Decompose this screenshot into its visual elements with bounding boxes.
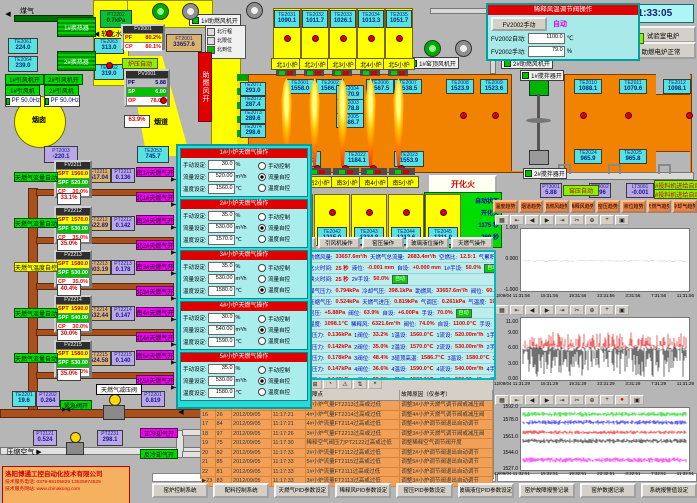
instrument-FT2001: FT200133657.6	[166, 34, 202, 52]
radio-label: 温度自控	[268, 388, 290, 396]
instrument-TE2064: TE2064239.0	[8, 56, 38, 72]
chart-series-2#小炉温度	[523, 420, 686, 425]
burner-indicator-strip	[333, 168, 359, 175]
controller-row-key: SP	[128, 89, 135, 95]
burner-field-input[interactable]: 35.0	[208, 364, 235, 374]
burner-field-input[interactable]: 30.0	[208, 160, 235, 170]
instrument-value: 298.1	[102, 437, 117, 443]
cut-icon[interactable]: ✂	[570, 305, 584, 315]
burner-field-input[interactable]: 35.0	[208, 211, 235, 221]
burner-field-unit: ℃	[236, 339, 242, 345]
param-row: 4压力:0.147kPa4阀位:36.6%4温设:1590.0℃4流设:540.…	[307, 364, 494, 375]
alarm-cell: 调整3#小炉天燃气调节阀或减压阀	[400, 401, 493, 410]
company-site: 技术服务网站: www.chinakong.com	[5, 485, 127, 492]
radio-icon	[258, 235, 266, 243]
regen-cell-north: TE20321011.7	[301, 8, 329, 60]
last-icon[interactable]: ⇥	[555, 305, 569, 315]
burner-field-input[interactable]: 520.00	[208, 172, 235, 182]
chart-xticks: 12/09/04 11:32:5115:32:5119:32:5123:32:5…	[494, 471, 694, 479]
burner-mode-radio[interactable]: 手动控制	[258, 262, 306, 273]
alarm-cell: 调整3#小炉天燃气调节阀或减压阀	[400, 430, 493, 439]
param-label: 液位:	[352, 264, 365, 272]
plant-label: 1#引风机开	[5, 74, 44, 85]
regen-cell-north: TE20311090.1	[273, 8, 301, 60]
cut-icon[interactable]: ✂	[570, 215, 584, 225]
next-icon[interactable]: ▶	[540, 305, 554, 315]
instrument-TE2035: TE20351051.7	[386, 10, 412, 28]
chart-ytick: 1578.0	[492, 417, 518, 424]
param-label: 5温设:	[391, 376, 407, 380]
param-label: 天燃气总流量:	[370, 253, 405, 261]
dilution-auto-input[interactable]: 1100.0	[528, 33, 565, 44]
burner-indicator-strip	[361, 168, 387, 175]
param-badge: 自动	[392, 275, 408, 284]
plant-label-text: 正冷却气开	[144, 429, 174, 438]
ops-button[interactable]: 窑压操作	[362, 237, 404, 249]
close-icon[interactable]: ×	[368, 379, 382, 389]
radio-label: 手动控制	[268, 315, 290, 323]
instrument-value: 319.0	[101, 71, 116, 77]
param-label: 1手设:	[486, 331, 494, 339]
chart-ytick: 1.000	[492, 225, 518, 232]
company-info: 洛阳博通工控自动化技术有限公司 技术服务电话: 0379-65105829 13…	[2, 466, 130, 503]
reducer-valve-body	[103, 405, 125, 420]
controller-row-key: SPT	[58, 217, 69, 223]
param-value: +0.000 mm	[413, 265, 441, 271]
alarm-row[interactable]: 21852012/09/0511:17:335#小炉流量FT2115过高或过低调…	[201, 458, 493, 468]
param-value: 1586.7℃	[421, 355, 444, 361]
zoom-icon[interactable]: ⊕	[585, 215, 599, 225]
nav-button[interactable]: 天燃气PID参数设定	[274, 483, 330, 498]
zoom-icon[interactable]: ⊕	[585, 305, 599, 315]
chart-toolbar: ▦⇤◀▶⇥✂⊕+▣	[495, 215, 629, 225]
param-value: 0.524kPa	[336, 299, 360, 305]
alarm-cell: 17	[201, 420, 216, 429]
burner-mode-radio[interactable]: 流量自控	[258, 273, 306, 284]
param-value: 70.0%	[437, 310, 453, 316]
alarm-cell: 97	[216, 430, 232, 439]
plant-label-text: 南3#天燃气开	[137, 262, 174, 271]
plant-label: 南5#天燃气开	[136, 350, 174, 360]
chart-series-玻璃液位	[523, 261, 686, 262]
plant-label: 天燃气流量自动	[14, 172, 58, 182]
param-value: 25 秒	[336, 275, 349, 283]
param-row: 2压力:0.142kPa2阀位:35.0%2温设:1570.0℃2流设:530.…	[307, 342, 494, 353]
alarm-cell: 4#小炉流量FT2114过高或过低	[306, 420, 401, 429]
plant-label-text: 北5#天燃气开	[137, 376, 174, 385]
instrument-TE2053: TE2053745.7	[137, 146, 169, 163]
run-indicator-icon	[6, 98, 10, 105]
alarm-cell: 2012/09/05	[232, 430, 272, 439]
next-icon[interactable]: ▶	[540, 395, 554, 405]
radio-label: 流量自控	[268, 326, 290, 334]
marker-icon[interactable]: +	[600, 395, 614, 405]
trend-button[interactable]: 天燃气趋势	[647, 200, 672, 213]
controller-row: SPF520.00	[57, 179, 89, 187]
controller-row-value: 530.00	[71, 226, 88, 232]
instrument-value: 965.9	[580, 156, 595, 162]
burner-mode-radios: 手动控制流量自控温度自控	[258, 313, 306, 346]
radio-label: 手动控制	[268, 162, 290, 170]
instrument-value: 517.04	[90, 175, 108, 181]
alarm-row[interactable]: 18972012/09/0511:17:263#小炉气量FT2213过高或过低调…	[201, 430, 493, 440]
fan-icon	[424, 40, 441, 57]
instrument-value: 522.89	[90, 223, 108, 229]
instrument-value: 0.140	[115, 358, 130, 364]
radio-label: 温度自控	[268, 235, 290, 243]
param-value: 6321.6m³/h	[372, 321, 400, 327]
indicator-green	[395, 170, 401, 174]
instrument-value: 1051.7	[390, 18, 408, 24]
grid-icon[interactable]: ▦	[495, 215, 509, 225]
radio-label: 温度自控	[268, 184, 290, 192]
instrument-value: 0.524	[37, 437, 52, 443]
controller-row-value: 1560.0	[71, 171, 88, 177]
param-label: 3温设:	[447, 354, 463, 362]
controller-row: PF5.88	[127, 79, 167, 87]
chart-xtick: 11:31:56	[677, 293, 694, 301]
alarm-row[interactable]: 20822012/09/0511:17:332#小炉流量FT2112过高或过低调…	[201, 449, 493, 459]
dilution-mode-value: 自动	[553, 19, 567, 29]
param-value: 74.0%	[419, 321, 435, 327]
param-label: 3阀位:	[354, 354, 370, 362]
param-label: 2流设:	[436, 343, 452, 351]
instrument-PT2214: PT22140.147	[111, 306, 135, 321]
plant-label-text: 1#引风机开	[9, 75, 40, 84]
burner-field-unit: ℃	[236, 186, 242, 192]
param-value: 2683.4m³/h	[408, 254, 436, 260]
burner-field-input[interactable]: 30.0	[208, 313, 235, 323]
controller-row-value: 1580.0	[71, 261, 88, 267]
cut-icon[interactable]: ✂	[570, 395, 584, 405]
instrument-TE2010: TE20101088.1	[574, 79, 602, 94]
last-icon[interactable]: ⇥	[555, 395, 569, 405]
burner-mode-radio[interactable]: 手动控制	[258, 364, 306, 375]
nav-button[interactable]: 稀释风PID参数设定	[335, 483, 391, 498]
controller-row: SPT1580.0	[57, 350, 89, 358]
instrument-value: -0.001	[631, 190, 648, 196]
plant-label-text: 煤气	[20, 6, 34, 15]
chart-xtick: 7:31:29	[651, 381, 666, 389]
grid-icon[interactable]: ▦	[495, 305, 509, 315]
controller-row-key: SPT	[58, 261, 69, 267]
alarm-cell: 11:17:26	[272, 430, 306, 439]
fan-icon	[246, 2, 263, 19]
instrument-value: 1098.1	[668, 86, 686, 92]
plant-label: 天燃气流量自动	[14, 218, 58, 228]
chart-series-1#小炉温度	[523, 439, 686, 444]
burner-mode-radio[interactable]: 流量自控	[258, 324, 306, 335]
plant-label-text: 2#引风机	[49, 86, 74, 95]
burner-field-unit: %	[236, 366, 241, 372]
alarm-cell: 调整1#小炉调节阀退出自动调节	[400, 468, 493, 477]
burner-indicator-strip	[276, 69, 296, 76]
instrument-value: 0.136	[115, 175, 130, 181]
burner-field-label: 手动设定:	[183, 365, 207, 373]
plant-label-text: 天燃气流量自动	[15, 173, 57, 182]
burner-section-4: 4#小炉天燃气操作手动设定:30.0%流量设定:540.00m³/h温度设定:1…	[180, 301, 308, 350]
plant-label: 北4#天燃气开	[136, 332, 174, 342]
save-icon[interactable]: ▣	[630, 395, 644, 405]
alarm-cell: 2012/09/05	[232, 439, 272, 448]
param-label: 3碹顶高温:	[391, 354, 418, 362]
burner-mode-radio[interactable]: 流量自控	[258, 171, 306, 182]
prev-icon[interactable]: ◀	[525, 395, 539, 405]
controller-row: SPT1570.0	[57, 216, 89, 224]
burner-field-unit: m³/h	[236, 225, 247, 231]
chart-xtick: 19:32:51	[569, 471, 587, 479]
param-value: 50.0%	[373, 276, 389, 282]
radio-label: 流量自控	[268, 224, 290, 232]
burner-field-unit: %	[236, 213, 241, 219]
burner-mode-radio[interactable]: 温度自控	[258, 284, 306, 295]
param-value: 0.140kPa	[328, 377, 352, 380]
radio-icon	[258, 388, 266, 396]
alarm-row[interactable]: 17842012/09/0511:17:214#小炉流量FT2114过高或过低调…	[201, 420, 493, 430]
trend-button[interactable]: 冷却气趋势	[672, 200, 697, 213]
param-label: 自设:	[397, 264, 410, 272]
radio-icon	[258, 286, 266, 294]
burner-mode-radio[interactable]: 温度自控	[258, 335, 306, 346]
burner-field-input[interactable]: 1590.0	[208, 337, 235, 347]
radio-icon	[258, 184, 266, 192]
burner-field-label: 手动设定:	[183, 161, 207, 169]
radio-icon	[258, 224, 266, 232]
fan-icon	[455, 40, 472, 57]
alarm-cell: 4#小炉气量FT2214过高或过低	[306, 411, 401, 420]
burner-mode-radio[interactable]: 温度自控	[258, 182, 306, 193]
instrument-TE2031: TE20311090.1	[274, 10, 300, 28]
nav-button[interactable]: 配料控制系统	[213, 483, 269, 498]
nav-button[interactable]: 系统报警值设定	[641, 483, 697, 498]
trend-button[interactable]: 助燃风趋势	[544, 200, 569, 213]
plant-label-text: 北2#天燃气开	[137, 241, 174, 250]
alarm-row[interactable]: 19752012/09/0511:17:30稀释空气阀压力PT2122过高或过低…	[201, 439, 493, 449]
first-icon[interactable]: ⇤	[510, 215, 524, 225]
alarm-cell: 调整5#小炉调节阀退出自动调节	[400, 458, 493, 467]
burner-mode-radio[interactable]: 流量自控	[258, 375, 306, 386]
save-icon[interactable]: ▣	[615, 305, 629, 315]
nav-button[interactable]: 窑炉数据记录	[580, 483, 636, 498]
bottom-navigation-bar: 窑炉控制系统配料控制系统天燃气PID参数设定稀释风PID参数设定窑压PID参数设…	[152, 481, 697, 499]
plant-label: 天燃气温度自控	[14, 262, 58, 272]
label-text: 北2小炉	[304, 60, 325, 69]
param-label: 2温设:	[391, 343, 407, 351]
burner-mode-radio[interactable]: 手动控制	[258, 160, 306, 171]
plant-label: 南3#天燃气开	[136, 261, 174, 271]
param-label: 助燃风:	[415, 287, 433, 295]
measure-point-dot	[460, 112, 467, 119]
controller-row: SP6.00	[127, 88, 167, 96]
valve-position-box: 40.4%	[57, 284, 81, 296]
ops-button[interactable]: 引风机操作	[318, 237, 360, 249]
param-label: 天燃气进压:	[362, 298, 391, 306]
param-label: 阀位:	[403, 320, 416, 328]
burner-field-input[interactable]: 530.00	[208, 376, 235, 386]
next-icon[interactable]: ▶	[540, 215, 554, 225]
radio-label: 温度自控	[268, 337, 290, 345]
trend-button[interactable]: 窑压趋势	[596, 200, 621, 213]
prev-icon[interactable]: ◀	[525, 215, 539, 225]
param-value: 540.00m³/h	[455, 366, 483, 372]
plant-label-text: 烟囱	[32, 115, 46, 125]
param-value: 50.0%	[466, 265, 482, 271]
alarm-row[interactable]: 16262012/09/0511:17:214#小炉气量FT2214过高或过低调…	[201, 411, 493, 421]
measure-point-dot	[106, 30, 113, 37]
instrument-TE2025: TE2025965.8	[619, 149, 647, 164]
nav-button[interactable]: 窑炉故障报警记录	[519, 483, 575, 498]
dilution-manual-input[interactable]: 79.0	[528, 46, 565, 57]
controller-FV2214: FV2214SPT1590.0SPF540.00CP30.0%	[54, 295, 92, 333]
param-row: 换火时间:25 秒2#手设:50.0%自动	[307, 274, 494, 285]
trend-button[interactable]: 烟道趋势	[519, 200, 544, 213]
radio-icon	[258, 326, 266, 334]
alarm-cell: 稀释空气阀压力PT2122过高或过低	[306, 439, 401, 448]
param-value: 1570.0℃	[410, 344, 433, 350]
indicator-red	[319, 170, 325, 174]
plant-label: 2#换热器	[57, 51, 96, 71]
trend-button[interactable]: 稀释风趋势	[570, 200, 595, 213]
ops-button[interactable]: 玻璃液位操作	[406, 237, 448, 249]
plant-label-text: ◀	[5, 10, 10, 18]
controller-id: FV2215	[56, 342, 90, 349]
burner-field-input[interactable]: 530.00	[208, 223, 235, 233]
burner-mode-radio[interactable]: 手动控制	[258, 313, 306, 324]
dilution-auto-unit: ℃	[567, 35, 574, 42]
indicator-red	[371, 71, 377, 75]
burner-field-input[interactable]: 35.0	[208, 262, 235, 272]
alarm-cell: 75	[216, 439, 232, 448]
plant-label: 2#引风机开	[44, 74, 83, 85]
plant-label-text: 1#窑顶风机开	[419, 59, 456, 68]
burner-field-input[interactable]: 1580.0	[208, 388, 235, 398]
save-icon[interactable]: ▣	[615, 215, 629, 225]
param-value: 0.261kPa	[442, 299, 466, 305]
param-label: 1阀位:	[354, 331, 370, 339]
dilution-mode-button[interactable]: FV2002手动	[491, 17, 547, 31]
trend-button[interactable]: 液位趋势	[621, 200, 646, 213]
instrument-TE2034: TE20341013.3	[358, 10, 384, 28]
param-label: 自设:	[382, 309, 395, 317]
instrument-value: 298.6	[245, 130, 260, 136]
burner-field-input[interactable]: 540.00	[208, 325, 235, 335]
param-label: 2#手设:	[352, 275, 371, 283]
stop-icon[interactable]: ●	[615, 395, 629, 405]
controller-row-value: 1590.0	[71, 306, 88, 312]
radio-icon	[258, 213, 266, 221]
burner-mode-radio[interactable]: 流量自控	[258, 222, 306, 233]
first-icon[interactable]: ⇤	[510, 305, 524, 315]
controller-row-key: CP	[125, 44, 133, 50]
alarm-cell: 5#小炉流量FT2115过高或过低	[306, 458, 401, 467]
indicator-green	[391, 71, 397, 75]
chart-series-3#小炉温度	[523, 430, 686, 434]
measure-point-dot	[160, 97, 167, 104]
sort-icon[interactable]: ⇅	[353, 379, 367, 389]
param-label: 5阀位:	[354, 376, 370, 380]
controller-row: SPF530.00	[57, 359, 89, 367]
radio-icon	[258, 337, 266, 345]
chart-xtick: 3:31:29	[625, 381, 640, 389]
controller-row: SPF530.00	[57, 269, 89, 277]
label-text: 北3小炉	[332, 60, 353, 69]
chart-xticks: 12/09/04 11:31:2915:31:2919:31:2923:31:2…	[494, 381, 694, 389]
instrument-value: 33657.6	[173, 42, 195, 48]
param-label: 煤气压力:	[309, 287, 333, 295]
nav-button[interactable]: 窑压PID参数设定	[396, 483, 452, 498]
chart-series-窑压(红)	[523, 332, 686, 349]
last-icon[interactable]: ⇥	[555, 215, 569, 225]
legend-indicator-icon	[207, 28, 215, 36]
param-label: 5手设:	[486, 376, 494, 380]
param-label: 1#手设:	[444, 264, 463, 272]
plant-label-text: ◀	[178, 408, 183, 416]
burner-field-input[interactable]: 1580.0	[208, 286, 235, 296]
prev-icon[interactable]: ◀	[525, 305, 539, 315]
instrument-value: 1026.1	[334, 18, 352, 24]
chart-xtick: 12/09/04 11:31:29	[494, 381, 530, 389]
zoom-icon[interactable]: ⊕	[585, 395, 599, 405]
param-label: 4流设:	[436, 365, 452, 373]
controller-id: FV2214	[56, 297, 90, 304]
measure-point-dot	[106, 62, 113, 69]
param-label: 2阀位:	[354, 343, 370, 351]
param-label: 手设:	[422, 309, 435, 317]
chart-xtick: 3:31:56	[625, 293, 640, 301]
trend-button[interactable]: 温度趋势	[493, 200, 518, 213]
regen-cell-north: TE20341013.3	[357, 8, 385, 60]
alert-icon[interactable]: ⚠	[338, 379, 352, 389]
valve-position-box: 35.0%	[57, 369, 81, 381]
label-text: 北1小炉	[276, 60, 297, 69]
indicator-red	[287, 71, 293, 75]
param-value: 25 秒	[336, 264, 349, 272]
instrument-value: 1184.1	[348, 158, 366, 164]
controller-row-key: SPF	[58, 360, 69, 366]
alarm-row[interactable]: 22812012/09/0511:17:331#小炉流量FT2111过高或过低调…	[201, 468, 493, 478]
alarm-cell: 22	[201, 468, 216, 477]
clock-icon[interactable]: ◔	[323, 379, 337, 389]
burner-mode-radio[interactable]: 手动控制	[258, 211, 306, 222]
chart-xtick: 15:32:51	[541, 471, 559, 479]
marker-icon[interactable]: +	[600, 305, 614, 315]
chart-xtick: 23:31:56	[597, 293, 615, 301]
label-text: 南4小炉	[364, 178, 385, 187]
burner-indicator-strip	[388, 69, 408, 76]
burner-field-label: 流量设定:	[183, 173, 207, 181]
burner-field-label: 手动设定:	[183, 314, 207, 322]
nav-button[interactable]: 玻璃液位PID参数设定	[458, 483, 514, 498]
nav-button[interactable]: 窑炉控制系统	[152, 483, 208, 498]
param-label: 换火时间:	[309, 275, 333, 283]
instrument-value: 1523.6	[485, 86, 503, 92]
burner-field-input[interactable]: 1570.0	[208, 235, 235, 245]
plant-label-text: 2#引风机开	[48, 75, 79, 84]
instrument-PT2213: PT22130.178	[111, 260, 135, 275]
measure-point-dot	[625, 112, 632, 119]
controller-FV2213: FV2213SPT1580.0SPF530.00CP35.0%	[54, 250, 92, 288]
burner-section-title: 2#小炉天燃气操作	[181, 200, 307, 209]
ops-button[interactable]: 天燃气操作	[451, 237, 493, 249]
legend-indicator-icon	[207, 37, 215, 45]
dilution-popup: 稀释风温调节阀操作 FV2002手动 自动 FV2002自动: 1100.0 ℃…	[486, 3, 640, 61]
burner-field-input[interactable]: 530.00	[208, 274, 235, 284]
marker-icon[interactable]: +	[600, 215, 614, 225]
burner-mode-radio[interactable]: 温度自控	[258, 233, 306, 244]
radio-label: 温度自控	[268, 286, 290, 294]
burner-field-input[interactable]: 1560.0	[208, 184, 235, 194]
burner-mode-radio[interactable]: 温度自控	[258, 386, 306, 397]
